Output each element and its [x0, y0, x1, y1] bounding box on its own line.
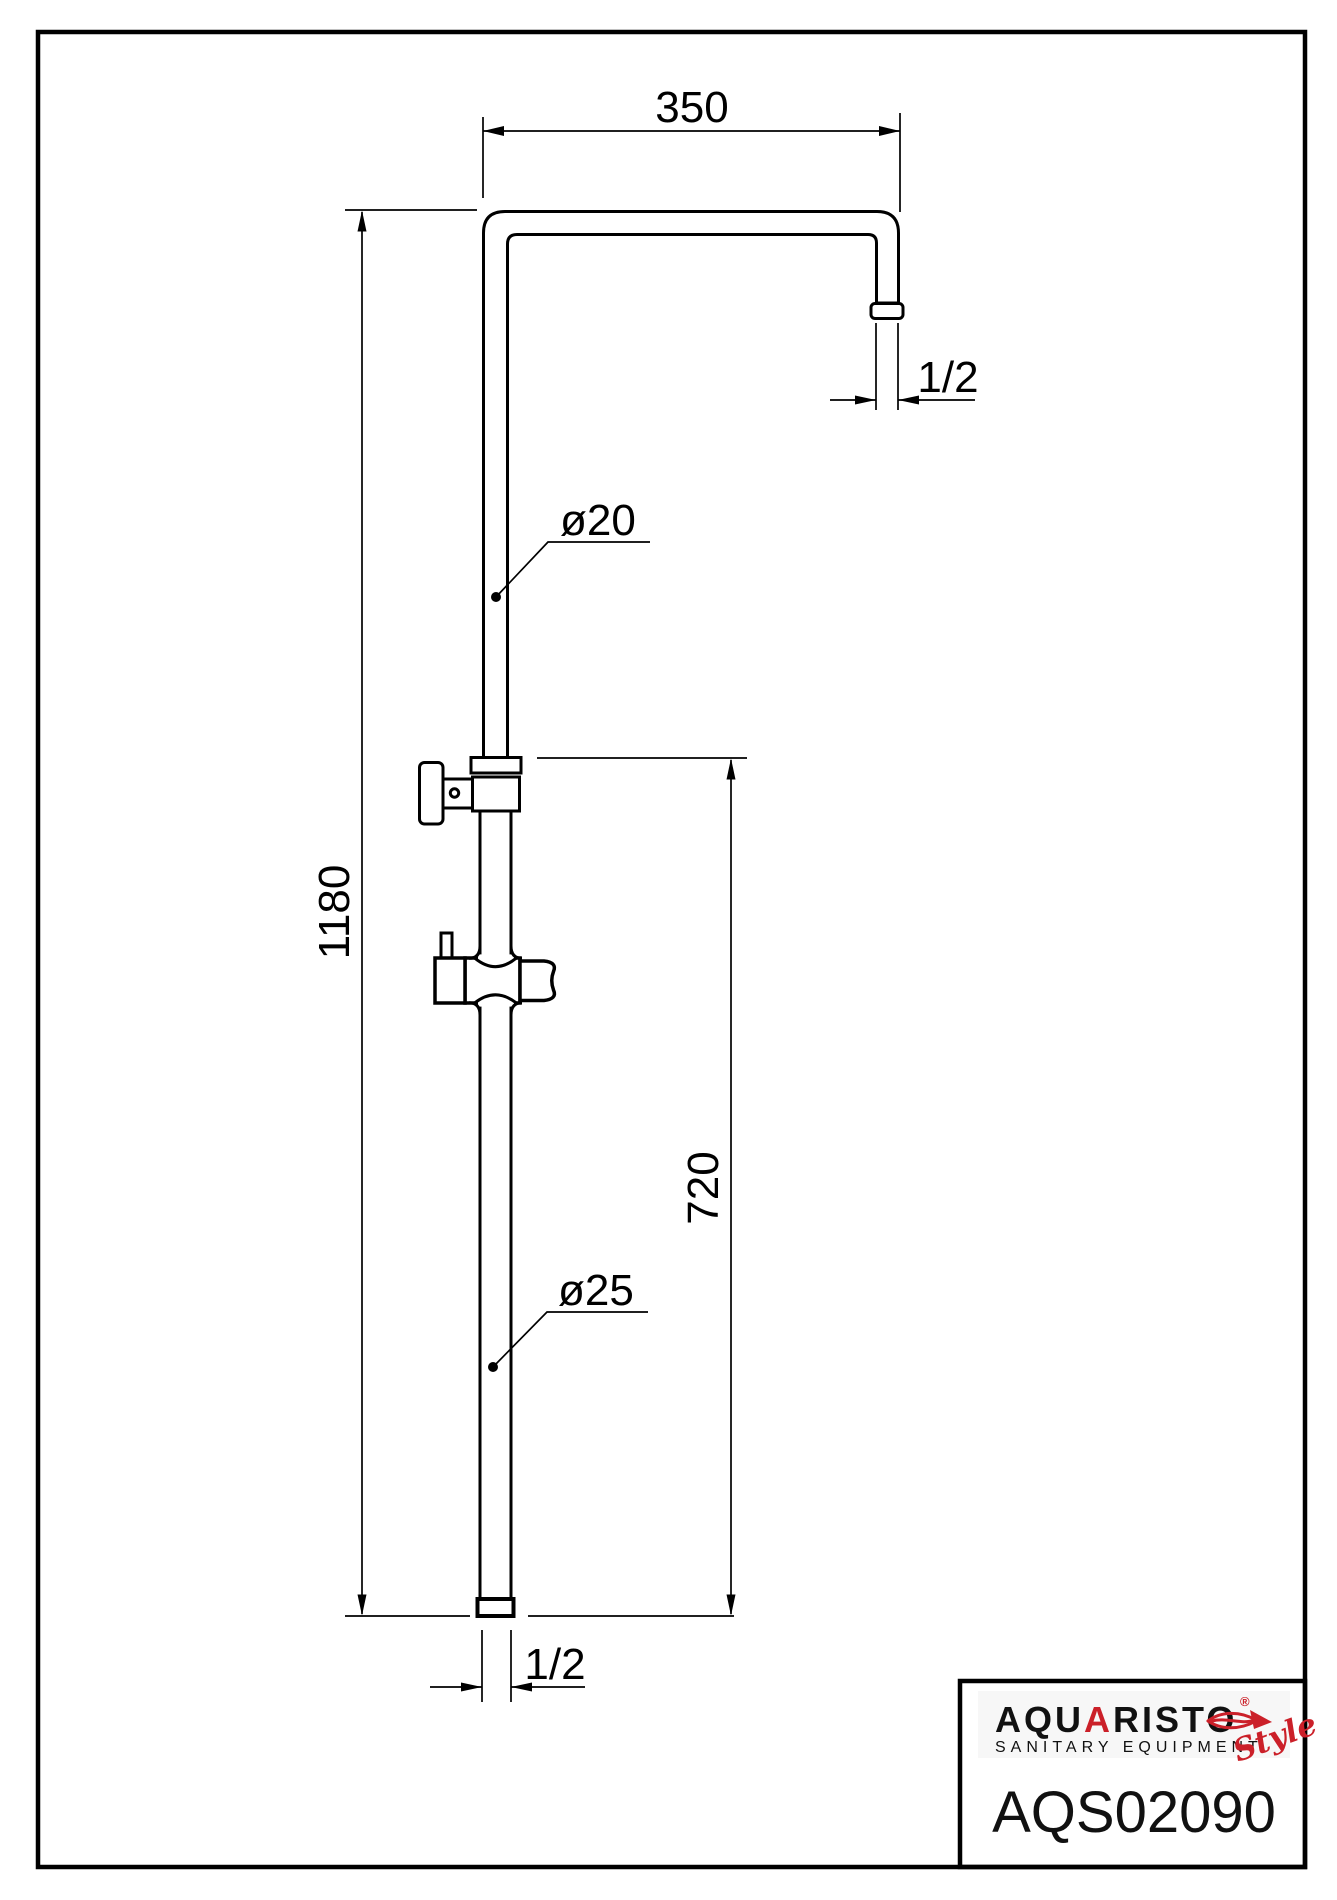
bracket-body — [473, 777, 520, 811]
dimension-1180-label: 1180 — [310, 865, 359, 960]
holder-pipe-gap-top — [478, 954, 514, 961]
holder-left-block — [435, 958, 465, 1003]
label-diameter-25-text: ø25 — [558, 1266, 634, 1315]
bottom-inlet-cap — [478, 1599, 514, 1616]
brand-accent-letter: A — [1084, 1699, 1113, 1740]
registered-mark-icon: ® — [1240, 1694, 1250, 1709]
label-diameter-20-text: ø20 — [560, 496, 636, 545]
holder-right-block — [520, 961, 554, 1001]
outlet-nipple — [871, 304, 903, 319]
brand-prefix: AQU — [995, 1699, 1084, 1740]
page-background — [0, 0, 1337, 1900]
holder-pin — [441, 933, 452, 958]
dimension-720-label: 720 — [679, 1151, 728, 1224]
leader-dot — [491, 592, 501, 602]
brand-tagline: SANITARY EQUIPMENT — [995, 1739, 1263, 1756]
holder-pipe-gap-bottom — [478, 999, 514, 1006]
dimension-top-thread-label: 1/2 — [917, 353, 978, 402]
model-number: AQS02090 — [992, 1780, 1276, 1845]
dimension-bottom-thread-label: 1/2 — [524, 1640, 585, 1689]
lower-pipe — [480, 810, 511, 1599]
bracket-knob — [420, 763, 444, 825]
technical-drawing-shower-column: 350 1/2 ø20 1180 720 ø25 — [0, 0, 1337, 1900]
dimension-350-label: 350 — [655, 83, 728, 132]
brand-wordmark: AQUARISTO — [995, 1699, 1237, 1740]
bracket-cap — [471, 758, 521, 774]
leader-dot — [488, 1362, 498, 1372]
